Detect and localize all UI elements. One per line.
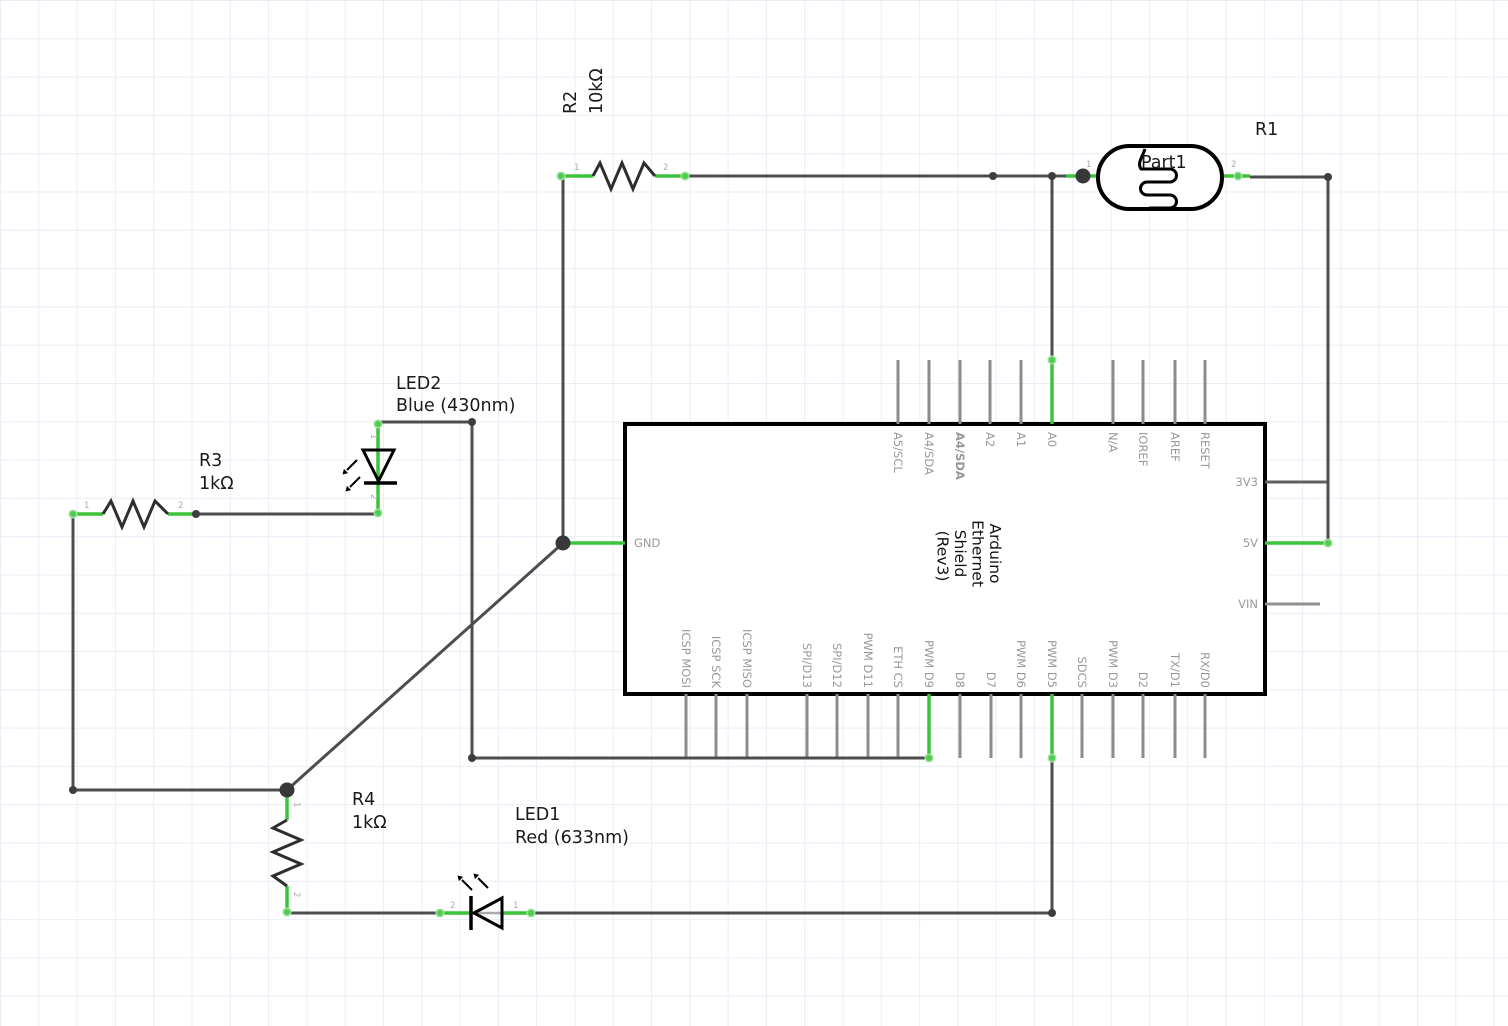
- chip-title-line: (Rev3): [934, 531, 952, 582]
- pin-label-ioref: IOREF: [1136, 432, 1150, 466]
- label-r1-part: Part1: [1141, 153, 1187, 173]
- led2-symbol[interactable]: [343, 450, 398, 492]
- pin-label-spi-d13: SPI/D13: [800, 643, 814, 688]
- pin-label-a5-scl: A5/SCL: [891, 432, 905, 473]
- led-emission-arrows: [458, 874, 489, 891]
- resistor-r4[interactable]: [273, 820, 301, 886]
- chip-title: Arduino Ethernet Shield (Rev3): [934, 520, 1005, 592]
- schematic-canvas: Arduino Ethernet Shield (Rev3): [0, 0, 1508, 1026]
- wire-dot: [69, 786, 77, 794]
- pin-label-a4-sda-2: A4/SDA: [953, 432, 967, 480]
- pin-number: 2: [368, 494, 378, 499]
- pin-label-vin: VIN: [1238, 597, 1258, 611]
- pin-label-aref: AREF: [1168, 432, 1182, 462]
- label-r3-designator: R3: [199, 451, 222, 471]
- pin-number: 2: [663, 163, 668, 173]
- wire-dot: [1324, 173, 1332, 181]
- junction-bottom-left[interactable]: [280, 783, 295, 798]
- label-led2-designator: LED2: [396, 374, 441, 394]
- label-r2-value: 10kΩ: [587, 68, 607, 114]
- pin-label-pwm-d3: PWM D3: [1106, 640, 1120, 688]
- pin-label-d2: D2: [1136, 672, 1150, 688]
- label-led1-designator: LED1: [515, 805, 560, 825]
- pin-label-na: N/A: [1106, 432, 1120, 452]
- label-led2-value: Blue (430nm): [396, 396, 515, 416]
- label-r3-value: 1kΩ: [199, 474, 234, 494]
- circuit-svg: Arduino Ethernet Shield (Rev3): [0, 0, 1508, 1026]
- pin-label-d7: D7: [984, 672, 998, 688]
- pin-number: 2: [178, 501, 183, 511]
- pin-label-spi-d12: SPI/D12: [830, 643, 844, 688]
- pin-label-icsp-mosi: ICSP MOSI: [679, 629, 693, 688]
- pin-label-a1: A1: [1014, 432, 1028, 447]
- wire-gnd-diagonal[interactable]: [287, 543, 563, 790]
- junction-r1-pin1[interactable]: [1076, 169, 1091, 184]
- resistor-zigzag: [593, 163, 655, 189]
- resistor-r2[interactable]: [593, 163, 655, 189]
- resistor-r3[interactable]: [103, 501, 168, 527]
- wire-dot: [468, 418, 476, 426]
- led1-symbol[interactable]: [458, 874, 503, 931]
- pin-label-3v3: 3V3: [1235, 475, 1258, 489]
- chip-title-line: Arduino: [986, 524, 1004, 584]
- pin-number: 1: [84, 501, 89, 511]
- pin-label-pwm-d6: PWM D6: [1014, 640, 1028, 688]
- pin-number: 1: [1086, 160, 1091, 170]
- pin-label-icsp-sck: ICSP SCK: [709, 636, 723, 689]
- label-r4-designator: R4: [352, 790, 375, 810]
- chip-bottom-pin-stubs: [686, 694, 1205, 758]
- pin-label-pwm-d11: PWM D11: [861, 633, 875, 688]
- resistor-zigzag: [273, 820, 301, 886]
- pin-label-tx-d1: TX/D1: [1168, 652, 1182, 688]
- junction-gnd[interactable]: [556, 536, 571, 551]
- pin-label-5v: 5V: [1243, 536, 1258, 550]
- label-r4-value: 1kΩ: [352, 813, 387, 833]
- label-led1-value: Red (633nm): [515, 828, 629, 848]
- label-r1-designator: R1: [1255, 120, 1278, 140]
- pin-number: 2: [450, 901, 455, 911]
- chip-title-line: Ethernet: [969, 520, 987, 587]
- pin-number: 1: [574, 163, 579, 173]
- pin-label-gnd: GND: [634, 536, 661, 550]
- pin-label-a2: A2: [983, 432, 997, 447]
- pin-number: 1: [368, 434, 378, 439]
- pin-number: 1: [291, 802, 301, 807]
- pin-label-pwm-d9: PWM D9: [922, 640, 936, 688]
- wire-dot: [989, 172, 997, 180]
- pin-number: 2: [291, 892, 301, 897]
- led-emission-arrows: [343, 460, 361, 492]
- pin-label-a0: A0: [1045, 432, 1059, 447]
- pin-number: 2: [1231, 160, 1236, 170]
- wire-dot: [1048, 172, 1056, 180]
- label-r2-designator: R2: [561, 91, 581, 114]
- resistor-zigzag: [103, 501, 168, 527]
- pin-number: 1: [513, 901, 518, 911]
- pin-label-d8: D8: [953, 672, 967, 688]
- chip-title-line: Shield: [951, 530, 969, 578]
- pin-label-rx-d0: RX/D0: [1198, 652, 1212, 688]
- pin-label-eth-cs: ETH CS: [891, 646, 905, 688]
- wire-dot: [1048, 909, 1056, 917]
- wire-dot: [468, 754, 476, 762]
- pin-label-a4-sda: A4/SDA: [922, 432, 936, 475]
- pin-label-icsp-miso: ICSP MISO: [740, 629, 754, 688]
- pin-label-sdcs: SDCS: [1075, 657, 1089, 689]
- wire-dot: [192, 510, 200, 518]
- pin-label-reset: RESET: [1198, 432, 1212, 470]
- pin-label-pwm-d5: PWM D5: [1045, 640, 1059, 688]
